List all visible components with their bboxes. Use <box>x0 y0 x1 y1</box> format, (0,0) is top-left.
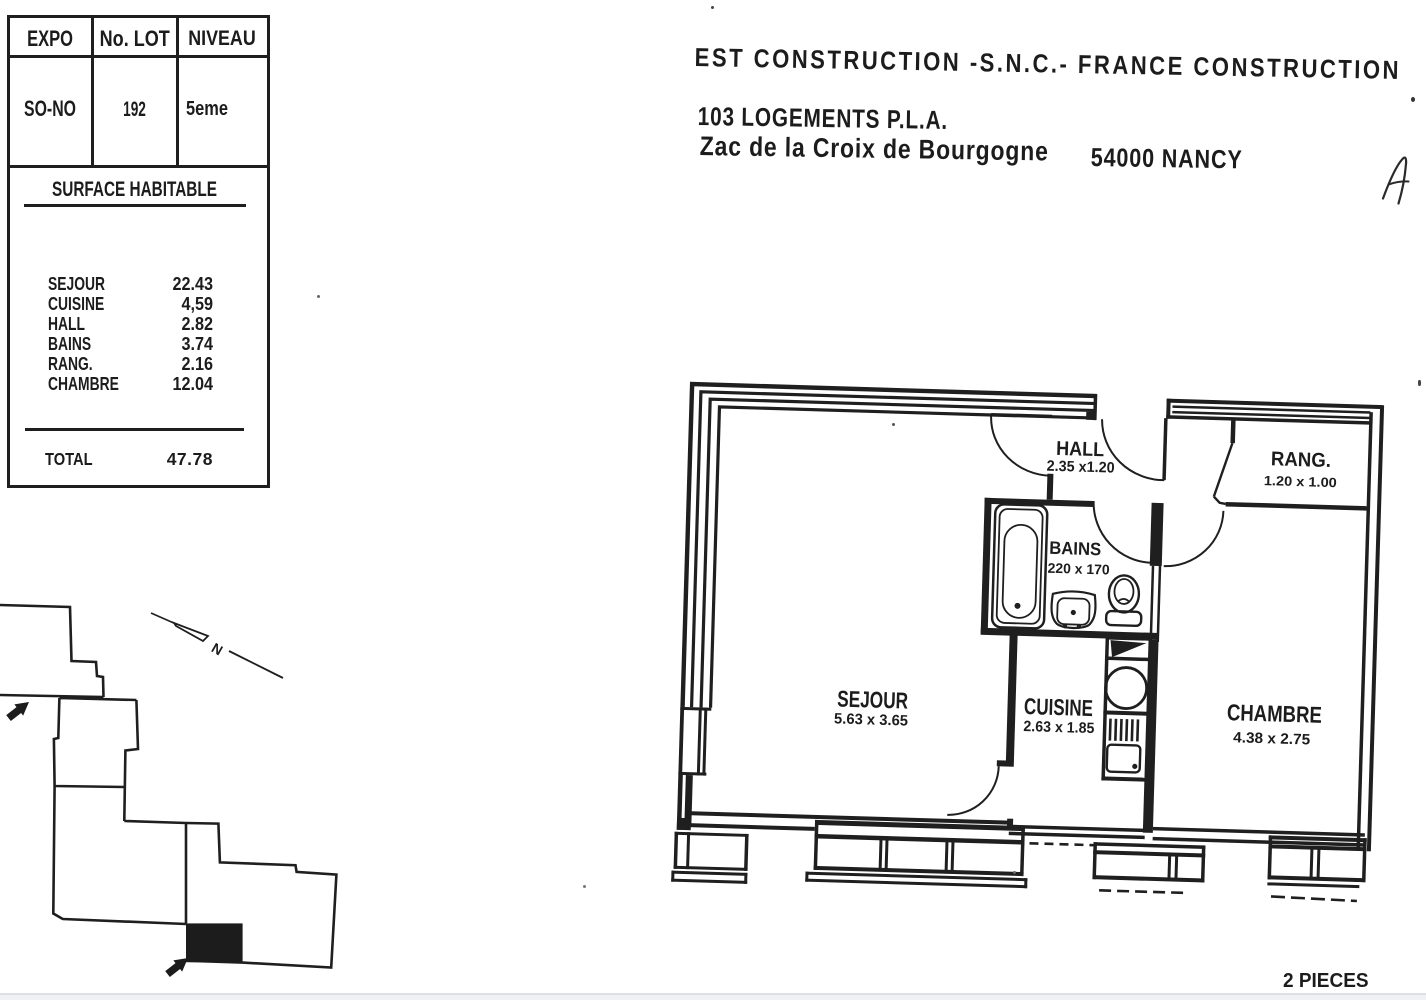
svg-text:2.63 x 1.85: 2.63 x 1.85 <box>1023 718 1094 737</box>
svg-text:RANG.: RANG. <box>1271 448 1332 472</box>
svg-text:1.20 x 1.00: 1.20 x 1.00 <box>1264 473 1337 490</box>
svg-text:5.63 x 3.65: 5.63 x 3.65 <box>834 710 908 729</box>
svg-text:SEJOUR: SEJOUR <box>837 686 909 714</box>
svg-text:CHAMBRE: CHAMBRE <box>1227 699 1323 728</box>
svg-text:220 x 170: 220 x 170 <box>1047 560 1110 578</box>
svg-text:N: N <box>209 639 226 658</box>
svg-text:4.38 x 2.75: 4.38 x 2.75 <box>1233 729 1310 748</box>
svg-text:2.35 x1.20: 2.35 x1.20 <box>1046 458 1114 477</box>
svg-text:CUISINE: CUISINE <box>1024 693 1094 721</box>
svg-text:BAINS: BAINS <box>1049 538 1102 560</box>
